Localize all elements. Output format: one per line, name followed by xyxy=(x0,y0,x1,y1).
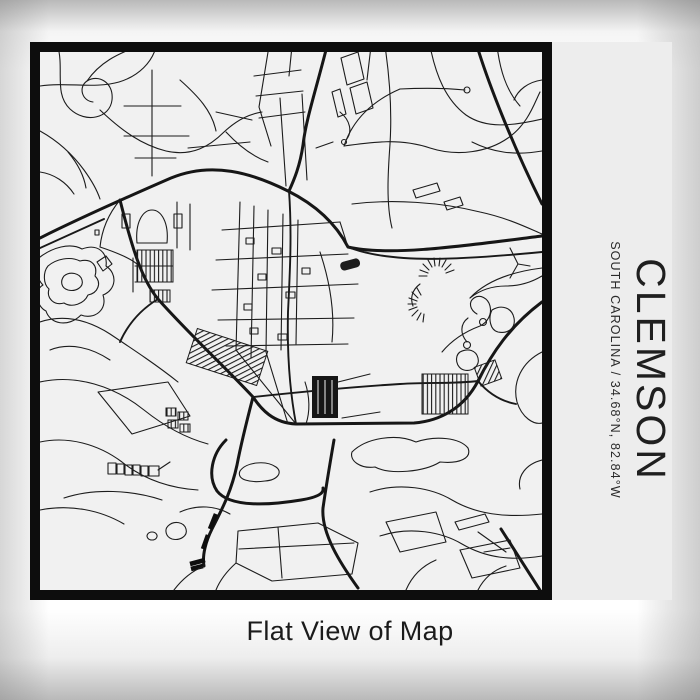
print-title: CLEMSON xyxy=(629,236,672,504)
major-roads xyxy=(40,52,542,590)
map-frame xyxy=(30,42,552,600)
street-map-drawing xyxy=(40,52,542,590)
print-subtitle: SOUTH CAROLINA / 34.68°N, 82.84°W xyxy=(608,236,622,504)
minor-streets xyxy=(40,52,542,590)
parking-garage xyxy=(312,376,338,418)
map-print: CLEMSON SOUTH CAROLINA / 34.68°N, 82.84°… xyxy=(30,42,672,600)
print-side-text: CLEMSON SOUTH CAROLINA / 34.68°N, 82.84°… xyxy=(608,236,672,504)
dam-walkway xyxy=(190,514,216,569)
view-caption: Flat View of Map xyxy=(0,616,700,647)
parking-areas xyxy=(137,250,502,432)
